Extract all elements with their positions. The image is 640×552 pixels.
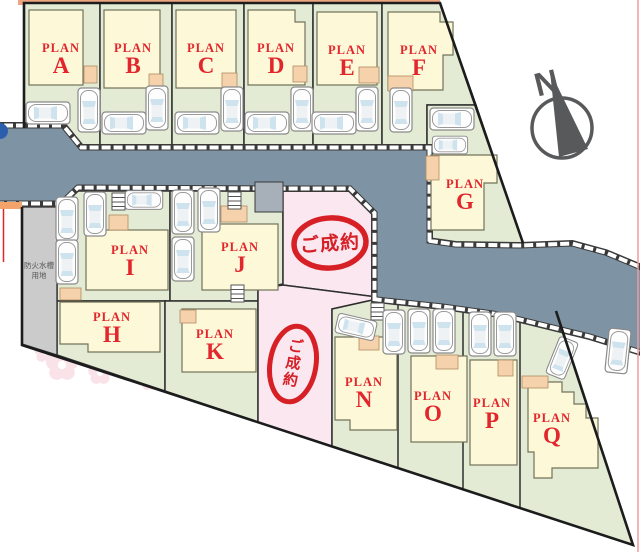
site-plan-svg: PLANA PLANB PLANC PLAND PLANE PLANF PLAN… bbox=[0, 0, 640, 552]
car-icon bbox=[312, 112, 356, 134]
car-icon bbox=[356, 87, 378, 131]
car-icon bbox=[245, 112, 289, 134]
porch bbox=[359, 67, 379, 83]
svg-text:約: 約 bbox=[282, 370, 300, 390]
car-icon bbox=[221, 87, 243, 131]
porch bbox=[84, 66, 97, 83]
porch bbox=[426, 156, 439, 180]
car-icon bbox=[146, 86, 168, 130]
porch bbox=[180, 310, 196, 323]
car-icon bbox=[291, 87, 313, 131]
porch bbox=[60, 288, 81, 300]
entry-steps-icon bbox=[231, 285, 244, 302]
fire-tank-area bbox=[22, 207, 57, 355]
car-icon bbox=[56, 197, 78, 241]
car-icon bbox=[408, 309, 430, 353]
porch bbox=[436, 355, 458, 369]
entry-steps-icon bbox=[112, 193, 125, 210]
car-icon bbox=[125, 191, 162, 210]
orange-edge-strip bbox=[0, 202, 22, 209]
fire-tank-label-line1: 防火水槽 bbox=[24, 260, 54, 270]
svg-text:成: 成 bbox=[284, 353, 302, 373]
car-icon bbox=[494, 312, 516, 356]
car-icon bbox=[390, 88, 412, 132]
utility-pad bbox=[255, 182, 283, 212]
car-icon bbox=[56, 240, 78, 284]
porch bbox=[222, 73, 237, 88]
north-compass: N bbox=[530, 62, 592, 158]
car-icon bbox=[26, 102, 70, 124]
north-label: N bbox=[530, 62, 562, 104]
car-icon bbox=[172, 237, 194, 281]
car-icon bbox=[102, 112, 146, 134]
car-icon bbox=[175, 112, 219, 134]
porch bbox=[522, 376, 548, 388]
car-icon bbox=[605, 328, 631, 374]
car-icon bbox=[430, 108, 474, 130]
house-q bbox=[528, 382, 598, 478]
car-icon bbox=[84, 192, 106, 236]
car-icon bbox=[78, 88, 100, 132]
fire-tank-label-line2: 用地 bbox=[32, 270, 47, 280]
site-plan-page: PLANA PLANB PLANC PLAND PLANE PLANF PLAN… bbox=[0, 0, 640, 552]
car-icon bbox=[432, 136, 467, 154]
car-icon bbox=[469, 312, 491, 356]
porch bbox=[498, 360, 513, 376]
car-icon bbox=[172, 190, 194, 234]
porch bbox=[109, 215, 128, 230]
entry-steps-icon bbox=[371, 303, 384, 320]
car-icon bbox=[198, 188, 220, 232]
porch bbox=[293, 66, 307, 82]
car-icon bbox=[383, 310, 405, 354]
entry-steps-icon bbox=[228, 192, 241, 209]
car-icon bbox=[433, 309, 455, 353]
